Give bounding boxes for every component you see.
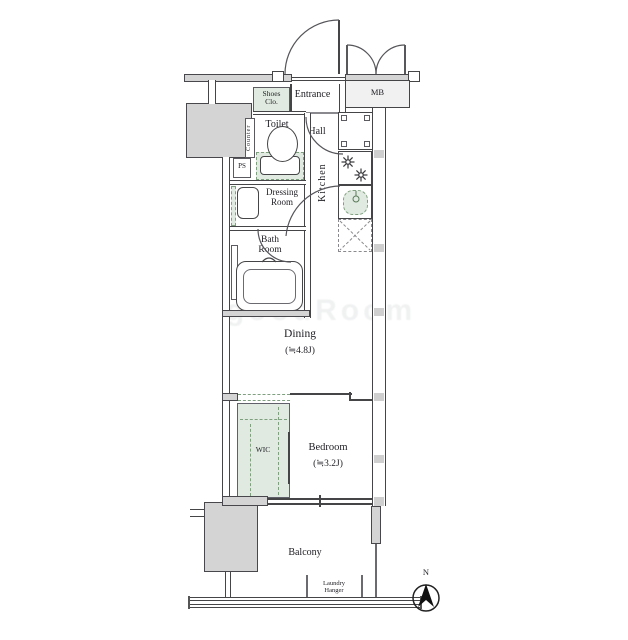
- dressing-shelf-strip: [231, 186, 236, 226]
- wic-top-dashed: [238, 400, 290, 401]
- balcony-railing: [190, 604, 420, 608]
- floor-plan: goodRoom MB Shoes Clo. Entrance Hall Cou…: [0, 0, 628, 640]
- compass-north-label: N: [418, 568, 434, 577]
- wic-top-dashed: [238, 394, 290, 395]
- stove-box: [338, 151, 372, 185]
- wic-hanger-pipe: [278, 407, 279, 495]
- balcony-label: Balcony: [275, 548, 335, 559]
- wall-toilet-hall: [304, 113, 311, 318]
- railing-end-cap: [188, 596, 190, 609]
- laundry-hanger-post: [361, 575, 363, 598]
- structural-column-top-left: [186, 103, 252, 158]
- laundry-hanger-post: [306, 575, 308, 598]
- sliding-door-upper: [290, 393, 352, 395]
- wall-seg: [374, 393, 384, 401]
- kitchen-label: Kitchen: [318, 150, 334, 216]
- entrance-label: Entrance: [285, 90, 340, 101]
- refrigerator-space: [338, 219, 372, 252]
- wall-shoes-toilet: [253, 111, 306, 115]
- bedroom-size-label: (≒3.2J): [288, 459, 368, 469]
- wic-hanger-pipe: [240, 419, 287, 420]
- wall-bath-dining: [222, 310, 310, 317]
- dressing-room-label: Dressing Room: [258, 188, 306, 207]
- washbasin-icon: [237, 187, 259, 219]
- bathtub-inner: [243, 269, 296, 304]
- meter-box-doors-icon: [347, 45, 405, 74]
- washer-pan-corner: [341, 115, 347, 121]
- wic-door-leaf: [288, 432, 290, 484]
- wall-dressing-bath: [230, 226, 306, 231]
- washer-pan-corner: [341, 141, 347, 147]
- sliding-door-lower: [350, 399, 372, 401]
- washer-pan-corner: [364, 115, 370, 121]
- entrance-door-icon: [285, 20, 339, 74]
- wall-partition-left: [222, 393, 238, 401]
- entrance-threshold: [292, 77, 345, 81]
- wall-entrance-right: [339, 84, 346, 112]
- wall-left-exterior: [222, 157, 230, 506]
- balcony-left-divider: [225, 572, 231, 598]
- balcony-right-wall: [371, 506, 381, 544]
- wall-seg: [374, 308, 384, 316]
- toilet-bowl-icon: [267, 126, 298, 162]
- wall-stub-top-left: [208, 80, 216, 104]
- dining-size-label: (≒4.8J): [250, 346, 350, 356]
- washer-pan-corner: [364, 141, 370, 147]
- bath-room-label: Bath Room: [248, 235, 292, 256]
- wall-seg: [374, 455, 384, 463]
- bedroom-label: Bedroom: [288, 442, 368, 453]
- wall-bedroom-bottom-left: [222, 496, 268, 506]
- laundry-hanger-label: Laundry Hanger: [316, 580, 352, 594]
- meter-box-label: MB: [345, 88, 410, 97]
- pipe-shaft-label: PS: [233, 163, 251, 171]
- structural-column-bottom-left: [204, 502, 258, 572]
- sink-basin-icon: [343, 190, 368, 215]
- wall-stub-balcony-left: [190, 509, 204, 517]
- wic-hanger-pipe: [250, 424, 251, 496]
- wall-seg: [374, 244, 384, 252]
- wall-seg: [374, 150, 384, 158]
- dining-label: Dining: [250, 328, 350, 340]
- wall-right-exterior: [372, 108, 386, 506]
- wall-shoes-entrance: [290, 84, 292, 114]
- wall-toilet-dressing: [230, 180, 306, 185]
- balcony-right-divider: [375, 544, 377, 597]
- railing-end-cap: [420, 596, 422, 609]
- window-center-tick: [319, 495, 321, 507]
- wall-seg: [374, 497, 384, 506]
- balcony-railing: [190, 597, 420, 601]
- door-jamb-left: [272, 71, 284, 82]
- sliding-door-tick: [349, 392, 351, 401]
- wic-label: WIC: [248, 446, 278, 454]
